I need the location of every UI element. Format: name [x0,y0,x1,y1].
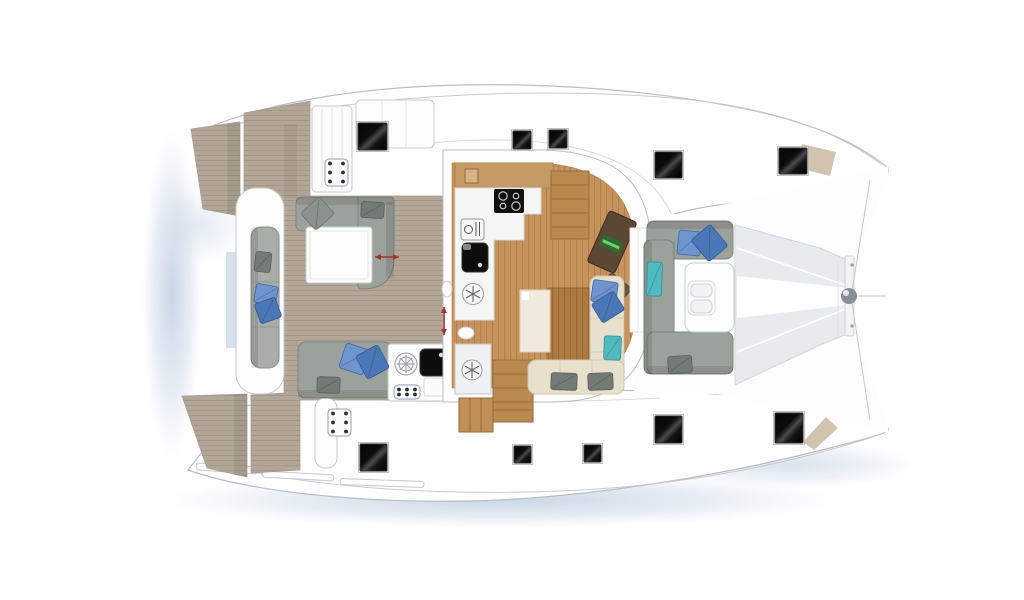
hatch-glass [655,416,682,443]
control-button [344,430,348,434]
galley-sink [462,243,488,272]
port-hull-stairs [551,171,589,239]
stairs-landing [459,398,493,432]
floor-fitting [458,327,474,339]
deck-hatch [778,147,809,176]
galley-small-appliance [465,169,478,183]
control-button [405,393,409,397]
control-button [341,180,345,184]
control-button [397,388,401,392]
hatch-glass [584,445,601,462]
starboard-swim-platform-shade [234,394,247,476]
beam-bolt [850,263,853,266]
fridge-icon [463,284,484,305]
fwd-sofa-backrest-side [644,240,652,374]
control-button [405,388,409,392]
deck-hatch [513,445,533,465]
cushion [361,201,385,218]
stairs-up [551,171,589,239]
saloon-table [548,288,592,364]
sliding-door-handle [442,281,452,297]
control-button [328,180,332,184]
control-button [344,421,348,425]
hatch-glass [775,413,803,443]
bowsprit-fitting [841,288,857,304]
control-panel [394,385,420,399]
deck-hatch [512,130,533,151]
aft-cockpit-table [306,227,372,283]
control-button [328,171,332,175]
control-panel [328,409,351,436]
deck-hatch [774,412,805,445]
aft-sofa-backrest-side [386,202,394,278]
cushion [668,355,693,373]
tray-handle [691,300,712,313]
stairs-down [493,360,533,422]
hatch-glass [360,444,387,471]
hatch-glass [358,123,387,150]
beam-bolt [850,324,853,327]
deck-hatch [357,122,389,152]
control-button [341,162,345,166]
control-button [413,388,417,392]
hatch-glass [513,131,531,149]
hatch-glass [549,130,567,148]
control-button [331,421,335,425]
hatch-glass [514,446,531,463]
deck-seam-shade [284,124,297,198]
control-button [344,412,348,416]
catamaran-deck-plan [0,0,1024,600]
cushion [551,373,578,391]
cooktop [494,189,524,213]
fwd-sofa-backrest-top [647,221,733,229]
control-panel-body [394,385,420,399]
control-panel [325,159,348,186]
cushion [646,262,662,297]
cushion [254,251,272,273]
bowsprit-fitting-notch [843,290,849,296]
saloon [442,150,652,432]
aft-bench-backrest [298,390,392,398]
cushion [588,373,614,391]
deck-hatch [583,444,603,464]
cushion [317,377,341,394]
control-button [331,430,335,434]
deck-plan-canvas [0,0,1024,600]
deck-hatch [359,443,389,473]
dishwasher-icon [461,219,484,240]
cabinet-lamp [522,292,529,300]
cushion [604,336,622,361]
hatch-glass [655,152,682,178]
control-button [341,171,345,175]
freezer-cabinet [455,344,491,394]
deck-hatch [654,151,684,180]
deck-hatch [654,415,684,445]
tray-handle [691,284,712,297]
control-button [397,393,401,397]
control-button [413,393,417,397]
deck-hatch [548,129,569,150]
hatch-glass [779,148,807,174]
control-button [328,162,332,166]
control-button [331,412,335,416]
fwd-cockpit-table [685,263,734,332]
